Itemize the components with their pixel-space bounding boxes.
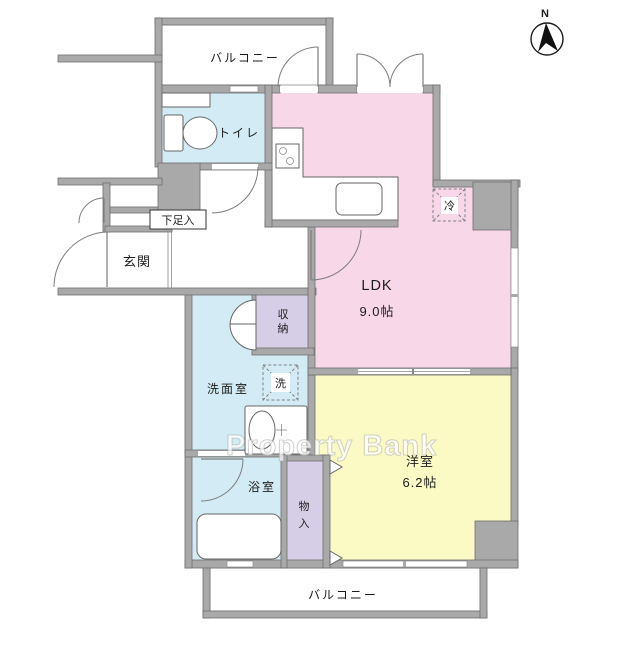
entrance-door-swing (54, 232, 107, 287)
door-opening (280, 86, 318, 92)
sliding-door-tick (412, 369, 414, 374)
door-opening (212, 164, 258, 170)
balcony-door-swing (278, 47, 318, 87)
room-label-toilet: トイレ (218, 126, 260, 140)
storage-area (256, 295, 308, 348)
wall-column (158, 163, 200, 213)
floor-plan: 冷 洗 下足入 バルコニー トイレ 玄関 LDK 9.0帖 洗面室 収 納 浴室… (0, 0, 640, 640)
toilet-door-swing (212, 167, 258, 213)
wall (155, 18, 162, 167)
bathtub-icon (197, 514, 281, 559)
window (227, 561, 253, 567)
shoe-cabinet: 下足入 (150, 210, 206, 229)
watermark: Property Bank (226, 430, 437, 462)
wall (203, 611, 487, 618)
wall (326, 18, 333, 92)
wall (252, 348, 314, 355)
room-label-entrance: 玄関 (123, 254, 151, 269)
wall (323, 455, 330, 568)
room-label-washroom: 洗面室 (207, 381, 249, 396)
shoe-cabinet-label: 下足入 (162, 215, 195, 227)
room-label-balcony-bottom: バルコニー (308, 588, 378, 602)
room-label-ldk: LDK (361, 278, 392, 294)
wall (433, 85, 440, 187)
wall (162, 85, 280, 93)
window-mullion (403, 561, 406, 567)
wall (318, 85, 357, 93)
wall (185, 292, 192, 568)
window-mullion (511, 294, 518, 297)
room-label-storage-2: 納 (278, 322, 289, 335)
room-size-western: 6.2帖 (402, 475, 437, 490)
toilet-bowl-icon (183, 117, 217, 149)
wall (511, 368, 518, 525)
room-label-balcony-top: バルコニー (210, 51, 280, 65)
room-label-closet-2: 入 (299, 518, 310, 530)
wall (480, 568, 487, 618)
room-label-bathroom: 浴室 (248, 479, 276, 494)
kitchen-sink-icon (336, 183, 382, 215)
floor-plan-page: 冷 洗 下足入 バルコニー トイレ 玄関 LDK 9.0帖 洗面室 収 納 浴室… (0, 0, 640, 640)
wall (155, 18, 333, 25)
wall (265, 85, 272, 227)
window (230, 86, 258, 92)
room-size-ldk: 9.0帖 (359, 304, 394, 319)
window (511, 248, 518, 347)
wall (203, 568, 210, 618)
meter-box-door-swing (79, 198, 104, 223)
room-label-storage-1: 収 (278, 308, 289, 321)
wall (265, 220, 398, 227)
refrigerator-label: 冷 (444, 200, 455, 213)
toilet-shelf (162, 93, 210, 107)
compass: N (531, 8, 563, 55)
stove-icon (276, 144, 299, 168)
room-label-closet-1: 物 (299, 499, 310, 513)
wall (58, 55, 162, 62)
wall (58, 288, 316, 295)
compass-north-label: N (541, 8, 549, 20)
washing-machine-label: 洗 (275, 377, 286, 390)
wall (281, 455, 287, 568)
toilet-tank-icon (164, 115, 183, 151)
french-door-left-swing (357, 54, 390, 87)
french-door-right-swing (390, 54, 423, 87)
